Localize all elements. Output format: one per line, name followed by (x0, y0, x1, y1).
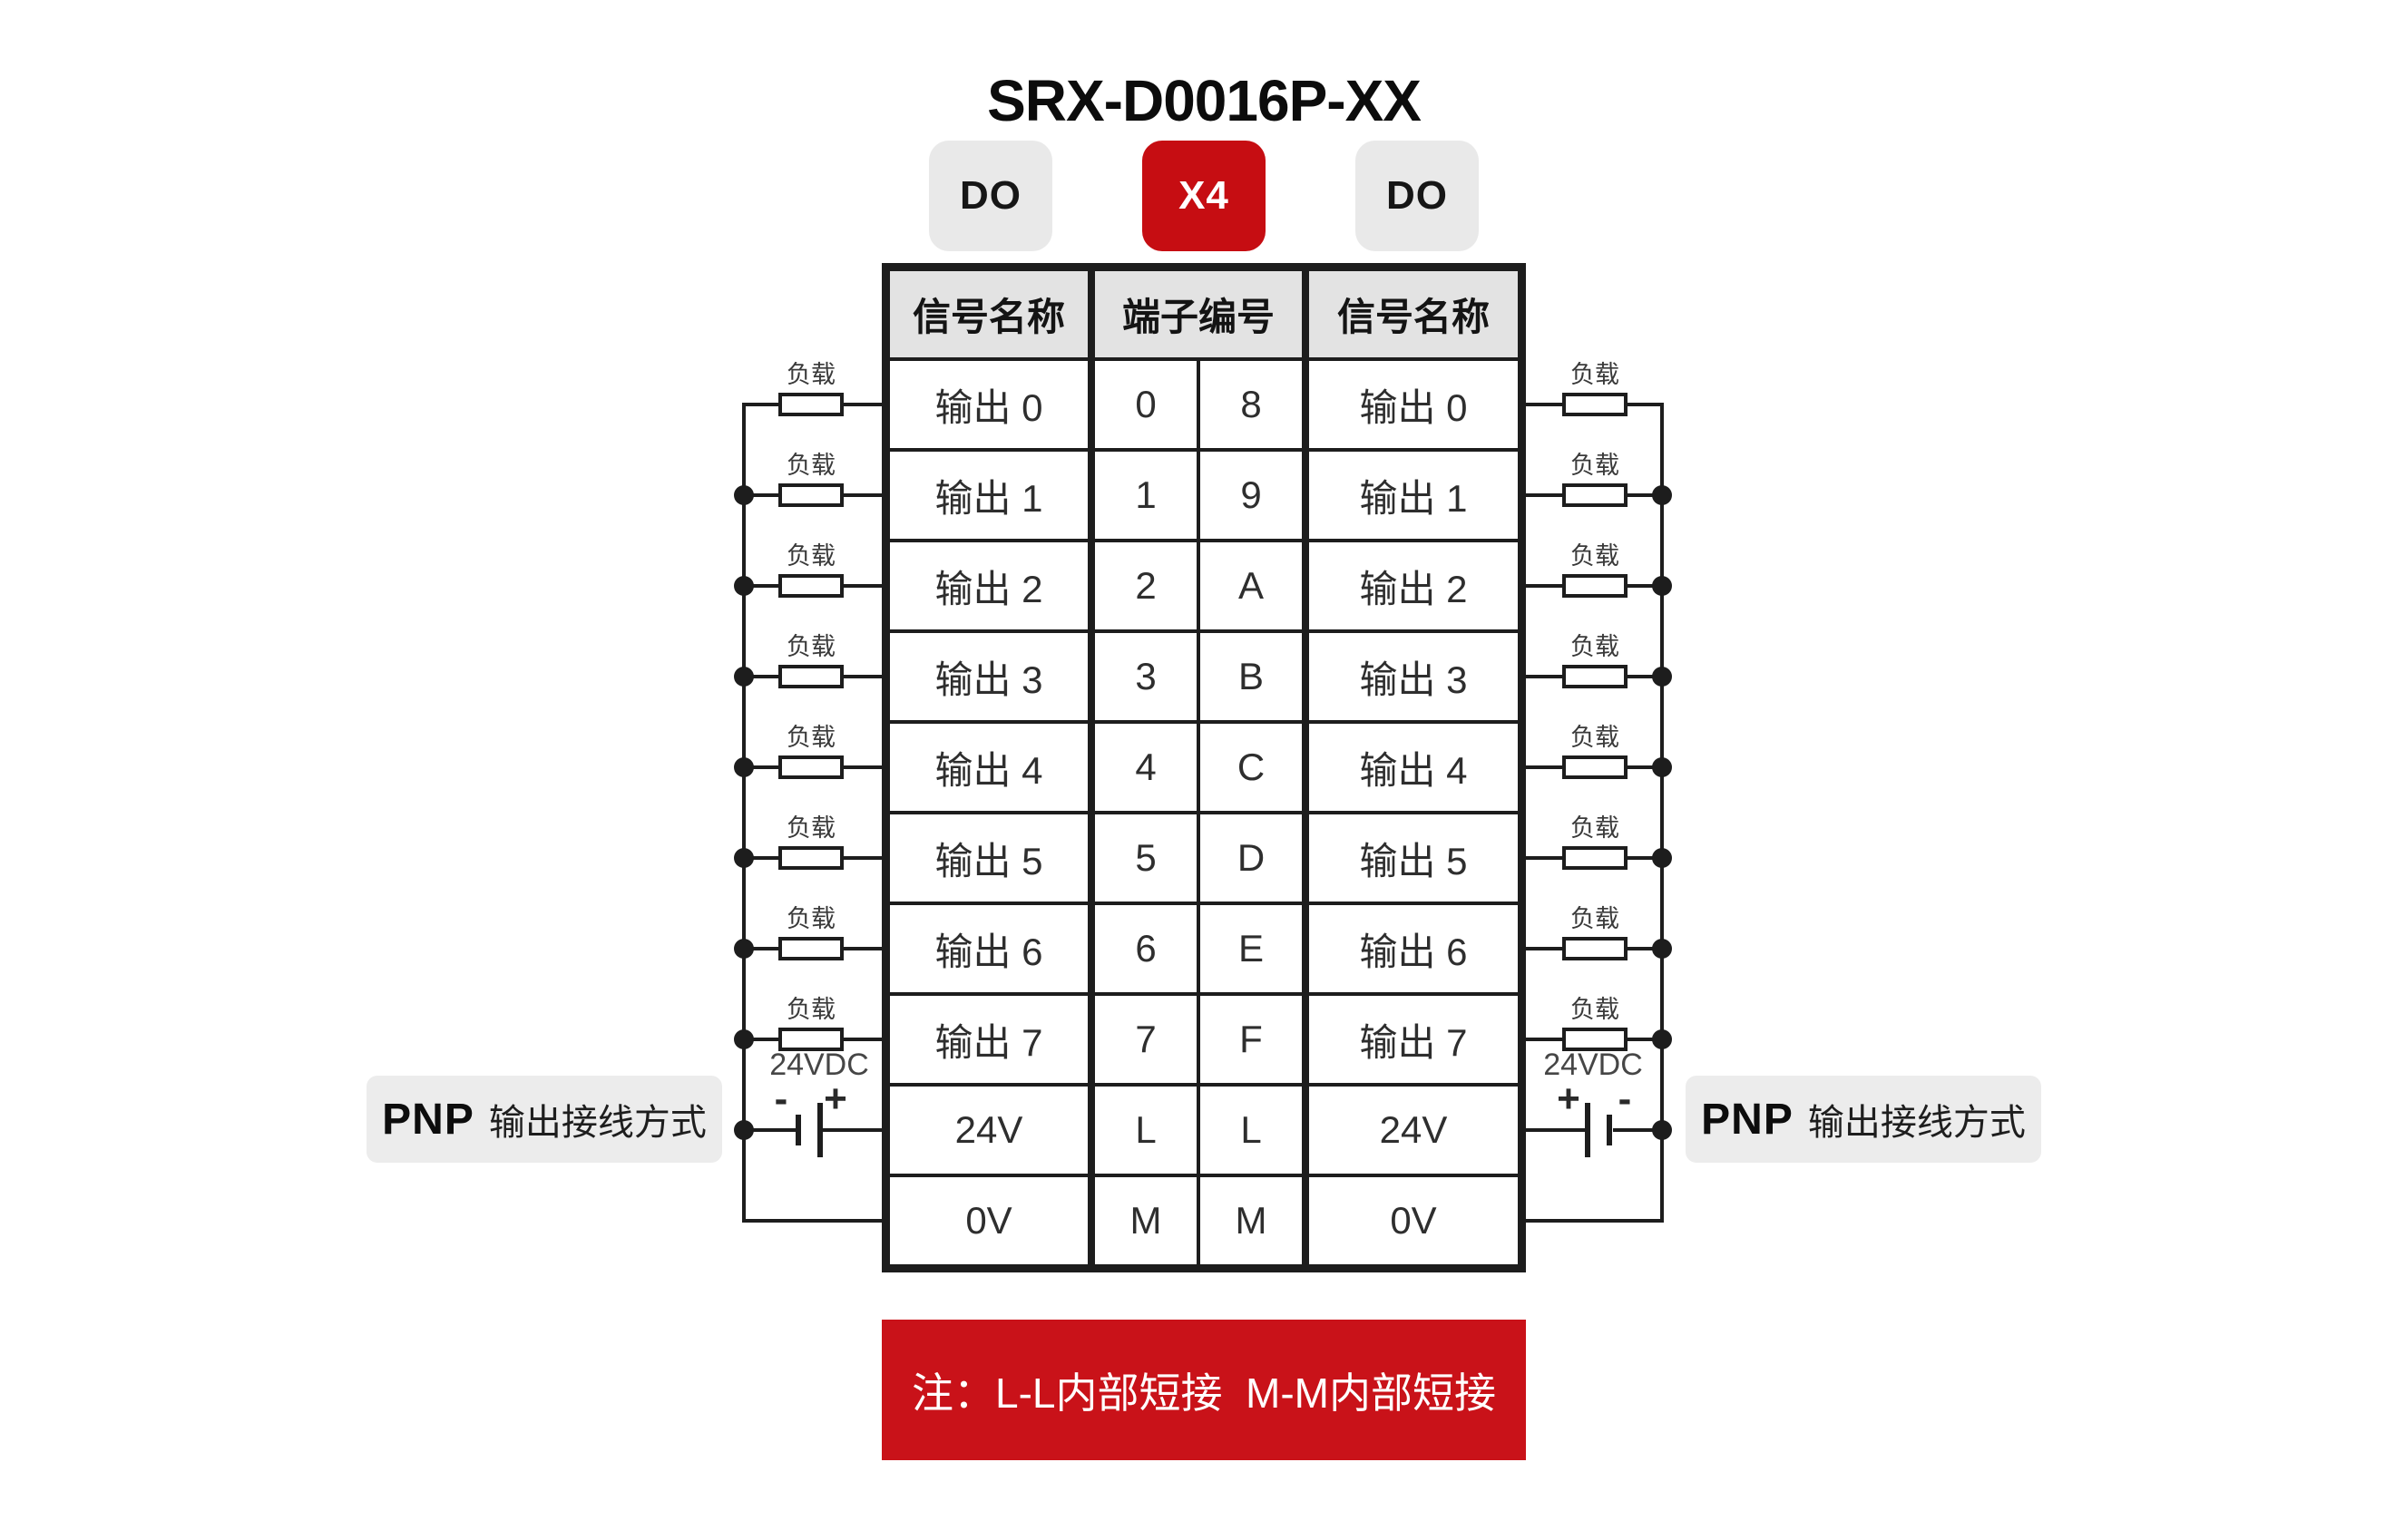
page-title: SRX-D0016P-XX (987, 67, 1421, 134)
signal-cell: 输出 6 (1309, 905, 1518, 992)
badge-do-right-label: DO (1386, 173, 1448, 219)
signal-cell: 输出 7 (1309, 996, 1518, 1083)
signal-cell: 0V (890, 1177, 1088, 1264)
terminal-cell: M (1095, 1177, 1197, 1264)
signal-cell: 输出 0 (890, 361, 1088, 448)
terminal-cell: 4 (1095, 724, 1197, 811)
battery-negative-terminal (796, 1115, 801, 1145)
terminal-cell: 5 (1095, 814, 1197, 902)
load-label: 负载 (757, 723, 865, 752)
pnp-label: PNP (382, 1095, 474, 1145)
junction-dot (734, 757, 754, 777)
load-resistor (778, 755, 844, 779)
load-label: 负载 (1540, 723, 1649, 752)
load-resistor (778, 483, 844, 507)
badge-do-left-label: DO (960, 173, 1022, 219)
junction-dot (1652, 667, 1672, 687)
signal-cell: 输出 2 (1309, 542, 1518, 629)
terminal-cell: A (1200, 542, 1302, 629)
load-resistor (1562, 937, 1628, 960)
header-cell: 端子编号 (1095, 271, 1302, 357)
pnp-label: PNP (1701, 1095, 1794, 1145)
load-resistor (778, 846, 844, 870)
header-cell: 信号名称 (1309, 271, 1518, 357)
junction-dot (1652, 939, 1672, 959)
badge-x4-label: X4 (1178, 173, 1229, 219)
junction-dot (734, 1029, 754, 1049)
plus-label: + (817, 1081, 854, 1117)
supply-voltage-label: 24VDC (756, 1047, 883, 1083)
junction-dot (1652, 848, 1672, 868)
junction-dot (734, 939, 754, 959)
load-resistor (1562, 393, 1628, 416)
terminal-cell: L (1200, 1087, 1302, 1174)
junction-dot (1652, 485, 1672, 505)
load-label: 负载 (1540, 451, 1649, 480)
wiring-diagram: SRX-D0016P-XX DO X4 DO 信号名称端子编号信号名称输出 00… (0, 0, 2395, 1540)
plus-label: + (1550, 1081, 1587, 1117)
load-label: 负载 (757, 541, 865, 570)
load-label: 负载 (757, 451, 865, 480)
signal-cell: 输出 6 (890, 905, 1088, 992)
terminal-cell: 7 (1095, 996, 1197, 1083)
load-label: 负载 (757, 814, 865, 843)
signal-cell: 24V (890, 1087, 1088, 1174)
terminal-cell: L (1095, 1087, 1197, 1174)
junction-dot (1652, 576, 1672, 596)
terminal-cell: D (1200, 814, 1302, 902)
load-label: 负载 (1540, 541, 1649, 570)
load-label: 负载 (757, 360, 865, 389)
load-resistor (1562, 665, 1628, 688)
supply-voltage-label: 24VDC (1530, 1047, 1657, 1083)
wire (744, 1219, 882, 1223)
signal-cell: 24V (1309, 1087, 1518, 1174)
header-cell: 信号名称 (890, 271, 1088, 357)
wire (822, 1128, 882, 1132)
load-resistor (1562, 755, 1628, 779)
terminal-cell: 1 (1095, 452, 1197, 539)
wire (744, 1128, 797, 1132)
load-label: 负载 (1540, 632, 1649, 661)
signal-cell: 输出 4 (890, 724, 1088, 811)
load-label: 负载 (1540, 814, 1649, 843)
terminal-cell: B (1200, 633, 1302, 720)
signal-cell: 输出 0 (1309, 361, 1518, 448)
wire (742, 403, 746, 1223)
signal-cell: 输出 4 (1309, 724, 1518, 811)
wire (1526, 1219, 1662, 1223)
battery-negative-terminal (1607, 1115, 1612, 1145)
terminal-cell: 2 (1095, 542, 1197, 629)
load-label: 负载 (1540, 904, 1649, 933)
load-label: 负载 (757, 995, 865, 1024)
terminal-cell: 3 (1095, 633, 1197, 720)
minus-label: - (763, 1081, 799, 1117)
pnp-wiring-caption-right: PNP 输出接线方式 (1686, 1076, 2041, 1163)
terminal-table: 信号名称端子编号信号名称输出 008输出 0输出 119输出 1输出 22A输出… (882, 263, 1526, 1272)
note-banner: 注：L-L内部短接 M-M内部短接 (882, 1320, 1526, 1460)
terminal-cell: F (1200, 996, 1302, 1083)
junction-dot (734, 667, 754, 687)
minus-label: - (1607, 1081, 1643, 1117)
signal-cell: 输出 1 (890, 452, 1088, 539)
junction-dot (734, 848, 754, 868)
badge-x4: X4 (1142, 141, 1266, 251)
wiring-method-label: 输出接线方式 (489, 1093, 707, 1145)
signal-cell: 输出 1 (1309, 452, 1518, 539)
load-resistor (1562, 574, 1628, 598)
signal-cell: 输出 5 (1309, 814, 1518, 902)
wire (1613, 1128, 1662, 1132)
load-resistor (1562, 846, 1628, 870)
signal-cell: 输出 3 (1309, 633, 1518, 720)
badge-do-right: DO (1355, 141, 1479, 251)
terminal-cell: 9 (1200, 452, 1302, 539)
wire (1526, 1128, 1586, 1132)
wire (1660, 403, 1664, 1223)
load-resistor (778, 937, 844, 960)
load-label: 负载 (757, 904, 865, 933)
junction-dot (734, 576, 754, 596)
terminal-cell: C (1200, 724, 1302, 811)
pnp-wiring-caption-left: PNP 输出接线方式 (367, 1076, 722, 1163)
load-resistor (1562, 483, 1628, 507)
junction-dot (734, 485, 754, 505)
terminal-cell: M (1200, 1177, 1302, 1264)
badge-do-left: DO (929, 141, 1052, 251)
load-label: 负载 (757, 632, 865, 661)
wiring-method-label: 输出接线方式 (1808, 1093, 2026, 1145)
signal-cell: 输出 7 (890, 996, 1088, 1083)
load-label: 负载 (1540, 995, 1649, 1024)
signal-cell: 输出 3 (890, 633, 1088, 720)
load-resistor (778, 393, 844, 416)
terminal-cell: 0 (1095, 361, 1197, 448)
signal-cell: 输出 5 (890, 814, 1088, 902)
load-label: 负载 (1540, 360, 1649, 389)
load-resistor (778, 665, 844, 688)
signal-cell: 0V (1309, 1177, 1518, 1264)
junction-dot (1652, 757, 1672, 777)
terminal-cell: 6 (1095, 905, 1197, 992)
terminal-cell: 8 (1200, 361, 1302, 448)
terminal-cell: E (1200, 905, 1302, 992)
load-resistor (778, 574, 844, 598)
signal-cell: 输出 2 (890, 542, 1088, 629)
